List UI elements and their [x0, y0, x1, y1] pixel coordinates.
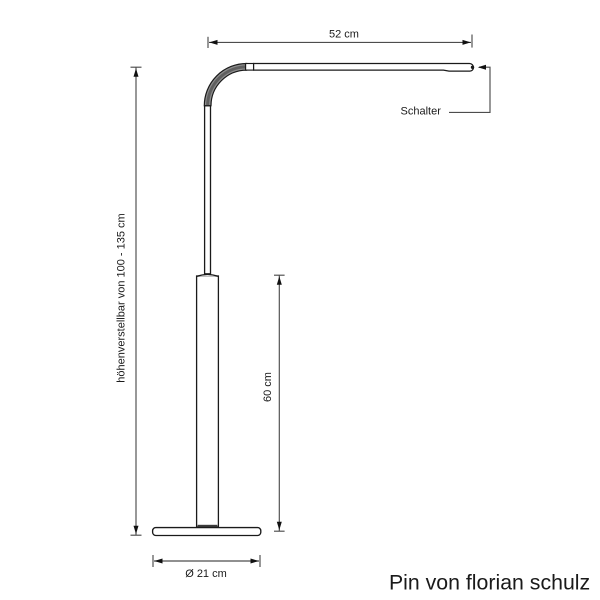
svg-text:Schalter: Schalter: [401, 106, 442, 118]
svg-text:Pin von florian schulz: Pin von florian schulz: [389, 570, 590, 594]
svg-text:52 cm: 52 cm: [329, 29, 359, 41]
svg-text:60 cm: 60 cm: [262, 372, 274, 402]
svg-text:höhenverstellbar von 100 - 135: höhenverstellbar von 100 - 135 cm: [116, 213, 128, 382]
svg-text:Ø 21 cm: Ø 21 cm: [185, 568, 227, 580]
